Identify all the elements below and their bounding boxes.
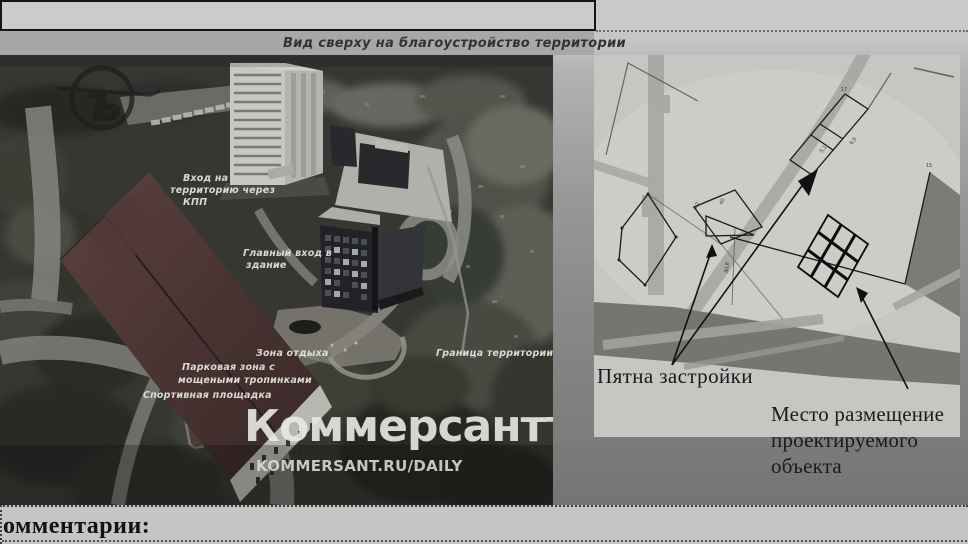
comments-heading: омментарии: — [3, 513, 150, 540]
dim-17: 17 — [841, 87, 847, 93]
footprints-label: Пятна застройки — [597, 364, 753, 389]
aerial-photo: ъ Вход на территорию через КПП Главный в… — [0, 55, 553, 505]
projected-object-label-line1: Место размещение — [771, 401, 944, 427]
label-main-entrance-2: здание — [245, 260, 287, 271]
figure-caption: Вид сверху на благоустройство территории — [283, 36, 626, 51]
kommersant-wordmark: Коммерсантъ — [244, 401, 553, 452]
projected-object-label-line3: объекта — [771, 453, 944, 479]
label-sports: Спортивная площадка — [143, 390, 272, 401]
watermark-glyph: ъ — [84, 74, 123, 134]
projected-object-label-line2: проектируемого — [771, 427, 944, 453]
label-main-entrance-1: Главный вход в — [243, 248, 332, 259]
article-figure: Вид сверху на благоустройство территории — [0, 0, 968, 544]
label-park-1: Парковая зона с — [182, 362, 275, 373]
empty-header-box — [0, 0, 596, 31]
photo-top-shade — [0, 55, 553, 67]
comments-rule — [2, 540, 968, 542]
label-entrance-3: КПП — [183, 197, 207, 208]
projected-object-label: Место размещение проектируемого объекта — [771, 401, 944, 479]
header-rule-right — [596, 0, 968, 32]
label-rest-zone: Зона отдыха — [256, 348, 329, 359]
photo-bottom-shade — [0, 445, 553, 505]
label-entrance-1: Вход на — [183, 173, 228, 184]
aerial-photo-render: ъ Вход на территорию через КПП Главный в… — [0, 55, 553, 505]
label-park-2: мощеными тропинками — [178, 375, 312, 386]
label-entrance-2: территорию через — [170, 185, 275, 196]
label-territory-border: Граница территории — [436, 348, 553, 359]
dim-30-8: 30,8 — [724, 262, 731, 273]
dim-15: 15 — [926, 163, 932, 169]
comments-strip: омментарии: — [0, 505, 968, 544]
kommersant-site-url: KOMMERSANT.RU/DAILY — [256, 457, 463, 475]
